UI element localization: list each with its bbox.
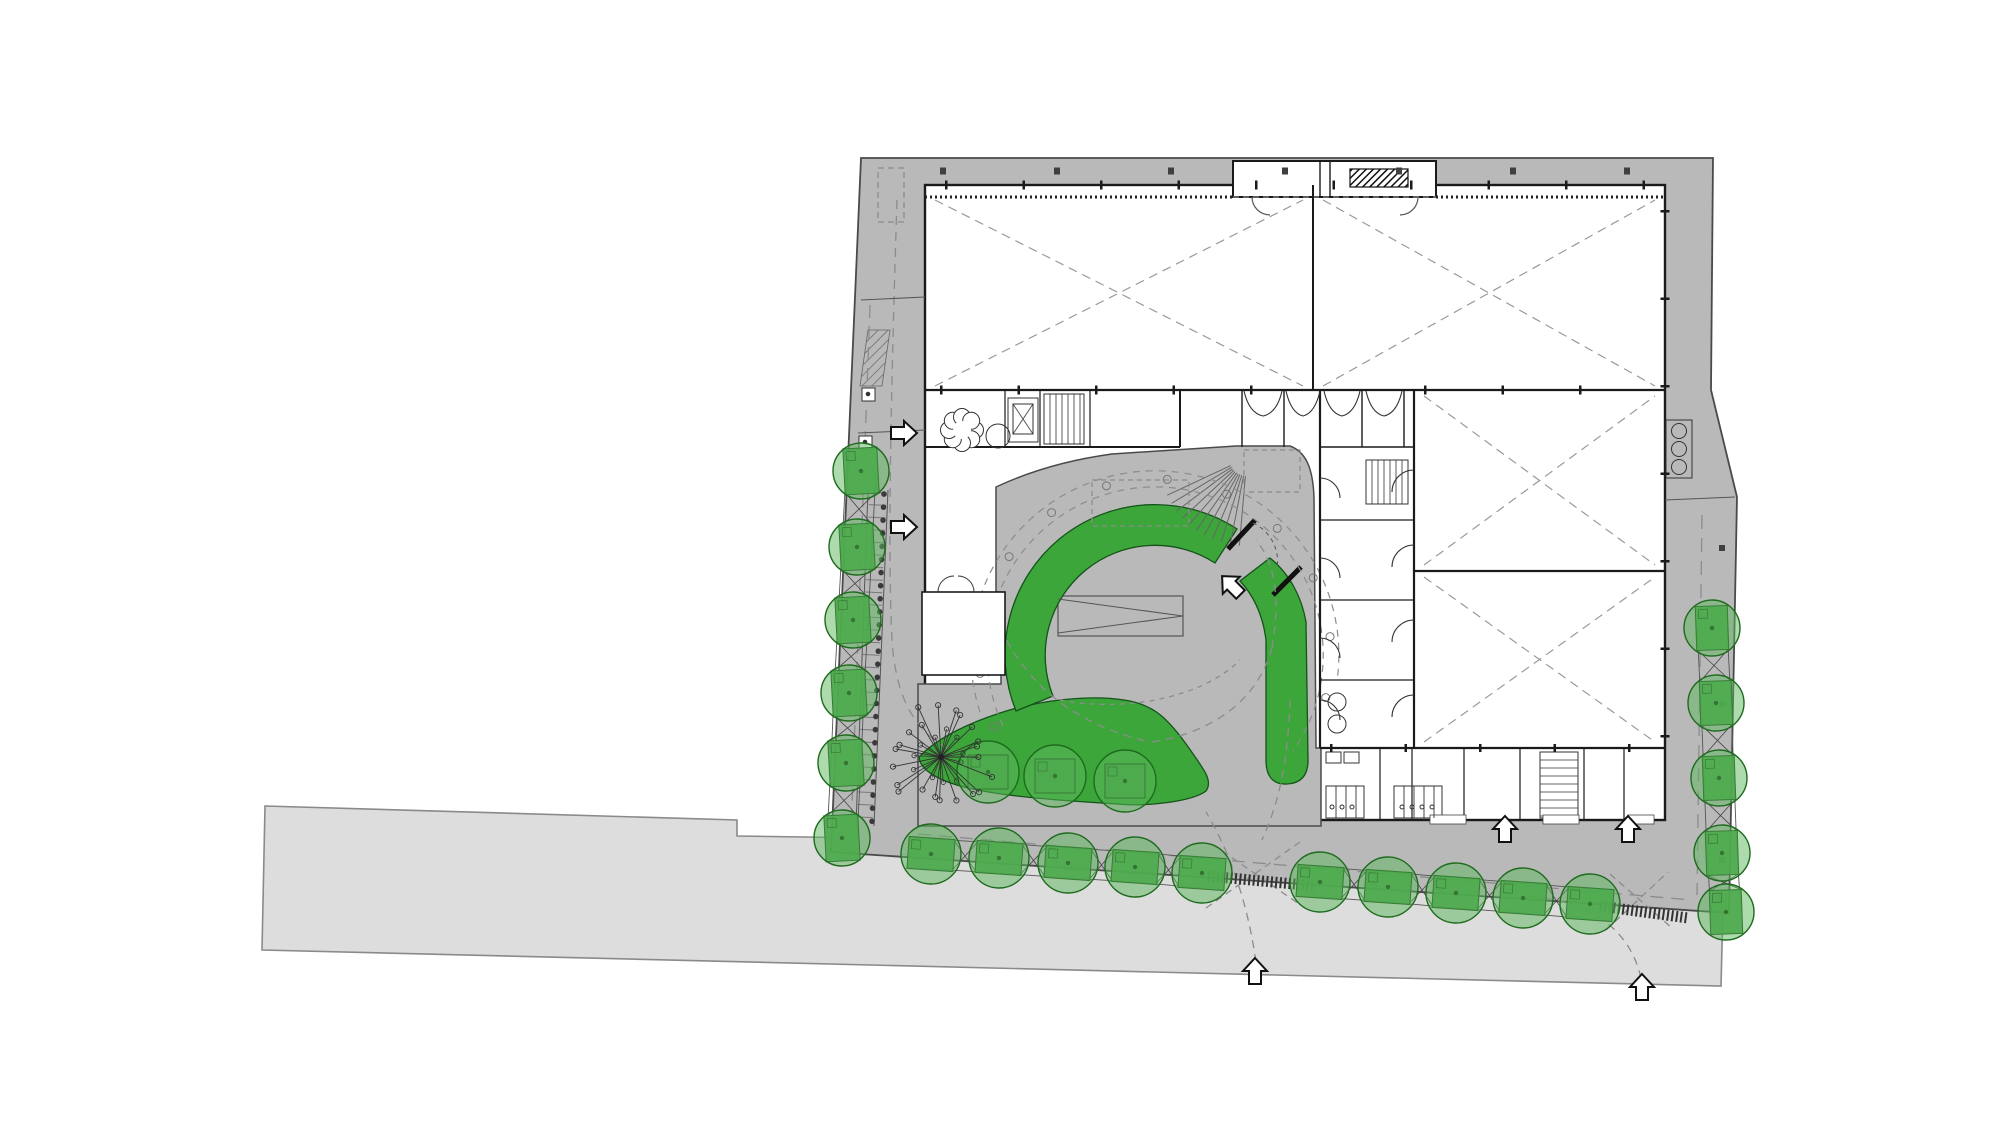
courtyard-lawn-trees-item [1094, 750, 1156, 812]
right-sidewalk-trees-item [1687, 674, 1745, 732]
right-sidewalk-trees-item [1690, 749, 1748, 807]
right-sidewalk-trees-item [1693, 824, 1751, 882]
courtyard-lawn-trees-item [957, 741, 1019, 803]
right-sidewalk-trees-item [1697, 883, 1755, 941]
site-plan-drawing [0, 0, 2000, 1143]
courtyard-lawn-trees-item [1024, 745, 1086, 807]
right-sidewalk-trees-item [1683, 599, 1741, 657]
site-plan-canvas [0, 0, 2000, 1143]
